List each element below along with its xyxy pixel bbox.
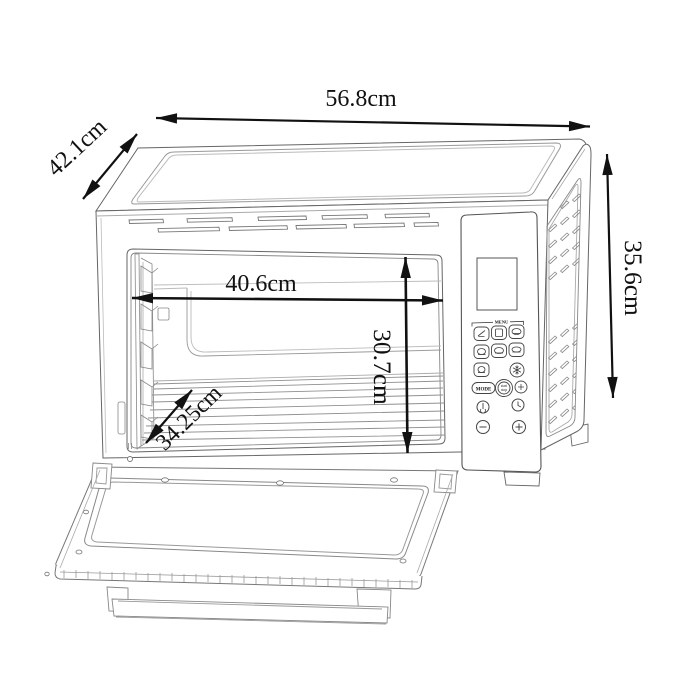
- svg-text:MODE: MODE: [476, 388, 492, 393]
- svg-text:30.7cm: 30.7cm: [368, 329, 397, 405]
- svg-text:MENU: MENU: [495, 319, 509, 324]
- svg-text:56.8cm: 56.8cm: [325, 86, 397, 112]
- svg-text:40.6cm: 40.6cm: [225, 271, 297, 297]
- svg-text:42.1cm: 42.1cm: [42, 114, 112, 182]
- svg-text:35.6cm: 35.6cm: [619, 240, 648, 316]
- svg-text:stop: stop: [501, 388, 507, 392]
